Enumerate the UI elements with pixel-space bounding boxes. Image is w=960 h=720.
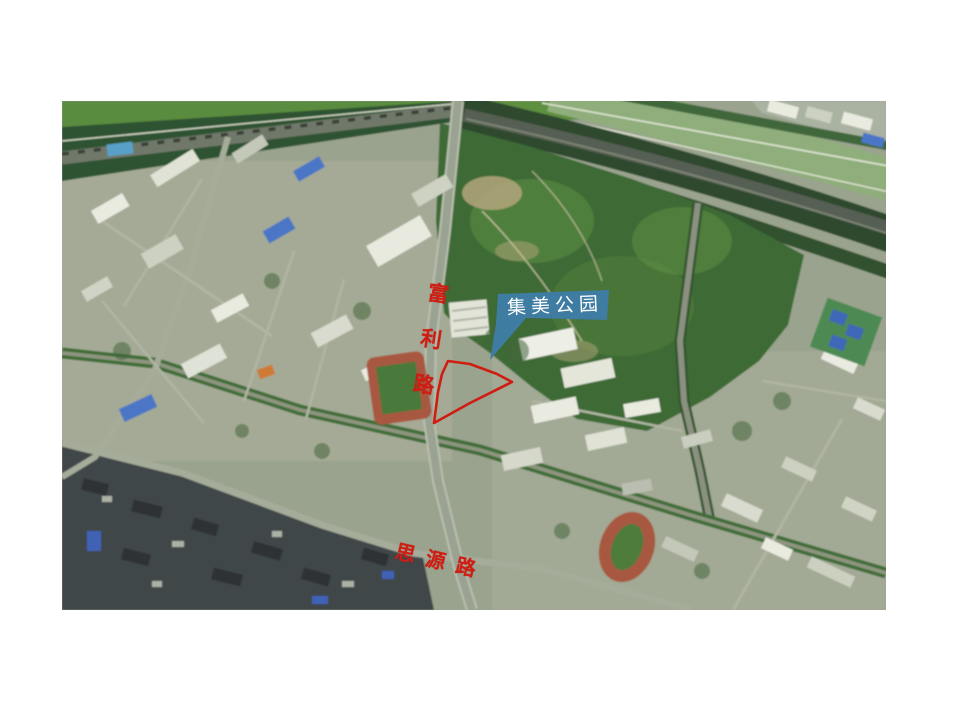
park-callout-label: 集美公园 — [495, 289, 609, 324]
slide-page: 集美公园 富利路 思源路 — [0, 0, 960, 720]
satellite-imagery — [62, 101, 886, 610]
satellite-map-image: 集美公园 富利路 思源路 — [62, 101, 886, 610]
